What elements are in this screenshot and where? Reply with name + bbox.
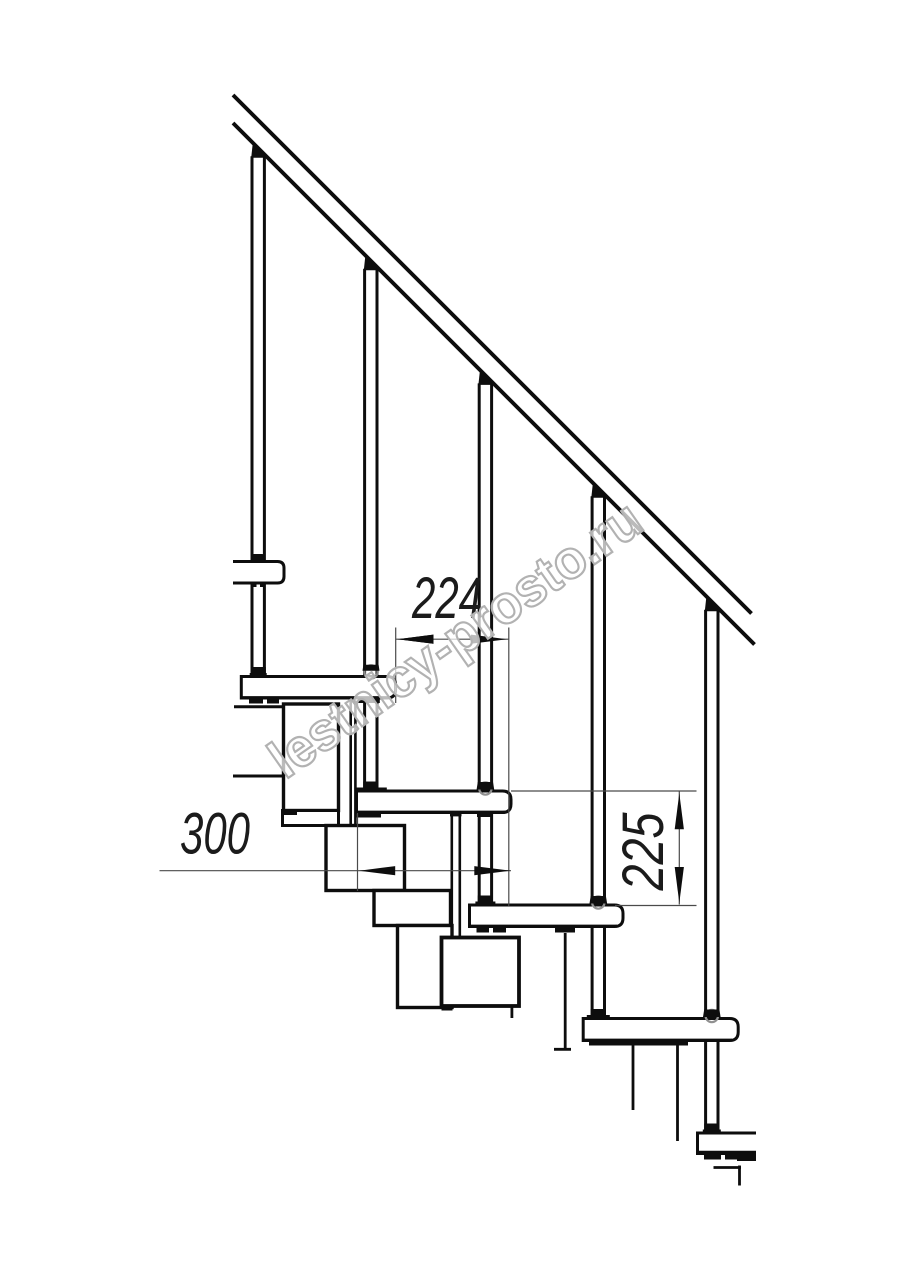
svg-text:300: 300 [180,802,250,867]
svg-text:225: 225 [611,812,676,891]
